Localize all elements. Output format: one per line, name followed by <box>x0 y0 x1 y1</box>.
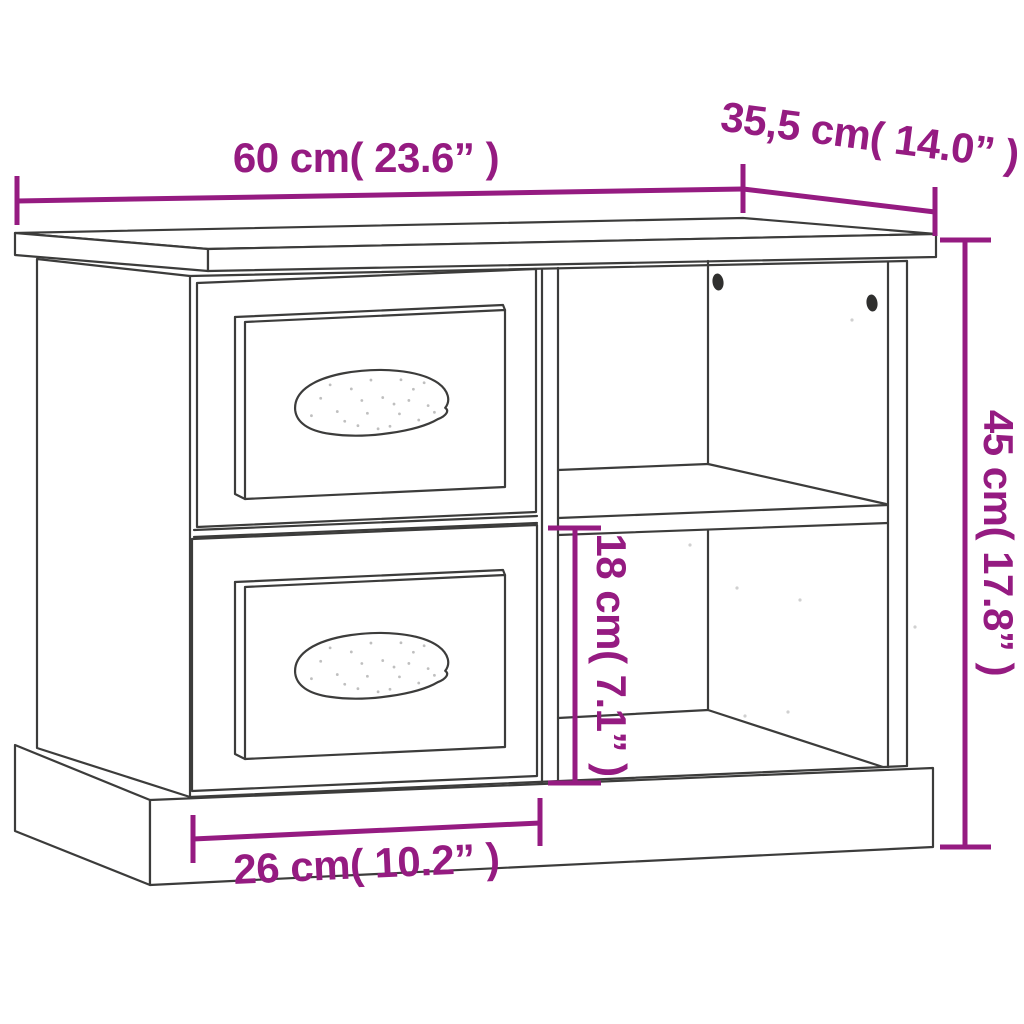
dimension-compartment-height-label: 18 cm( 7.1” ) <box>588 533 635 776</box>
dimension-height-label: 45 cm( 17.8” ) <box>975 410 1022 676</box>
cam-screw-right <box>865 294 878 312</box>
dimension-width: 60 cm( 23.6” ) <box>17 134 743 225</box>
drawer-bottom <box>192 525 537 791</box>
cam-screw-left <box>711 273 724 291</box>
cabinet-diagram-svg: 60 cm( 23.6” ) 35,5 cm( 14.0” ) 45 cm( 1… <box>0 0 1024 1024</box>
left-side-panel <box>37 259 190 797</box>
dimension-compartment-height: 18 cm( 7.1” ) <box>548 528 635 783</box>
dimension-depth: 35,5 cm( 14.0” ) <box>718 93 1022 236</box>
shelf <box>558 464 888 535</box>
dimension-diagram: 60 cm( 23.6” ) 35,5 cm( 14.0” ) 45 cm( 1… <box>0 0 1024 1024</box>
dimension-depth-label: 35,5 cm( 14.0” ) <box>718 93 1022 179</box>
cabinet-line-art <box>15 218 936 885</box>
drawer-top-handle <box>294 367 450 439</box>
dimension-width-label: 60 cm( 23.6” ) <box>233 134 499 181</box>
drawer-bottom-handle <box>294 630 450 702</box>
drawer-top <box>197 269 536 527</box>
dimension-height: 45 cm( 17.8” ) <box>940 240 1022 847</box>
